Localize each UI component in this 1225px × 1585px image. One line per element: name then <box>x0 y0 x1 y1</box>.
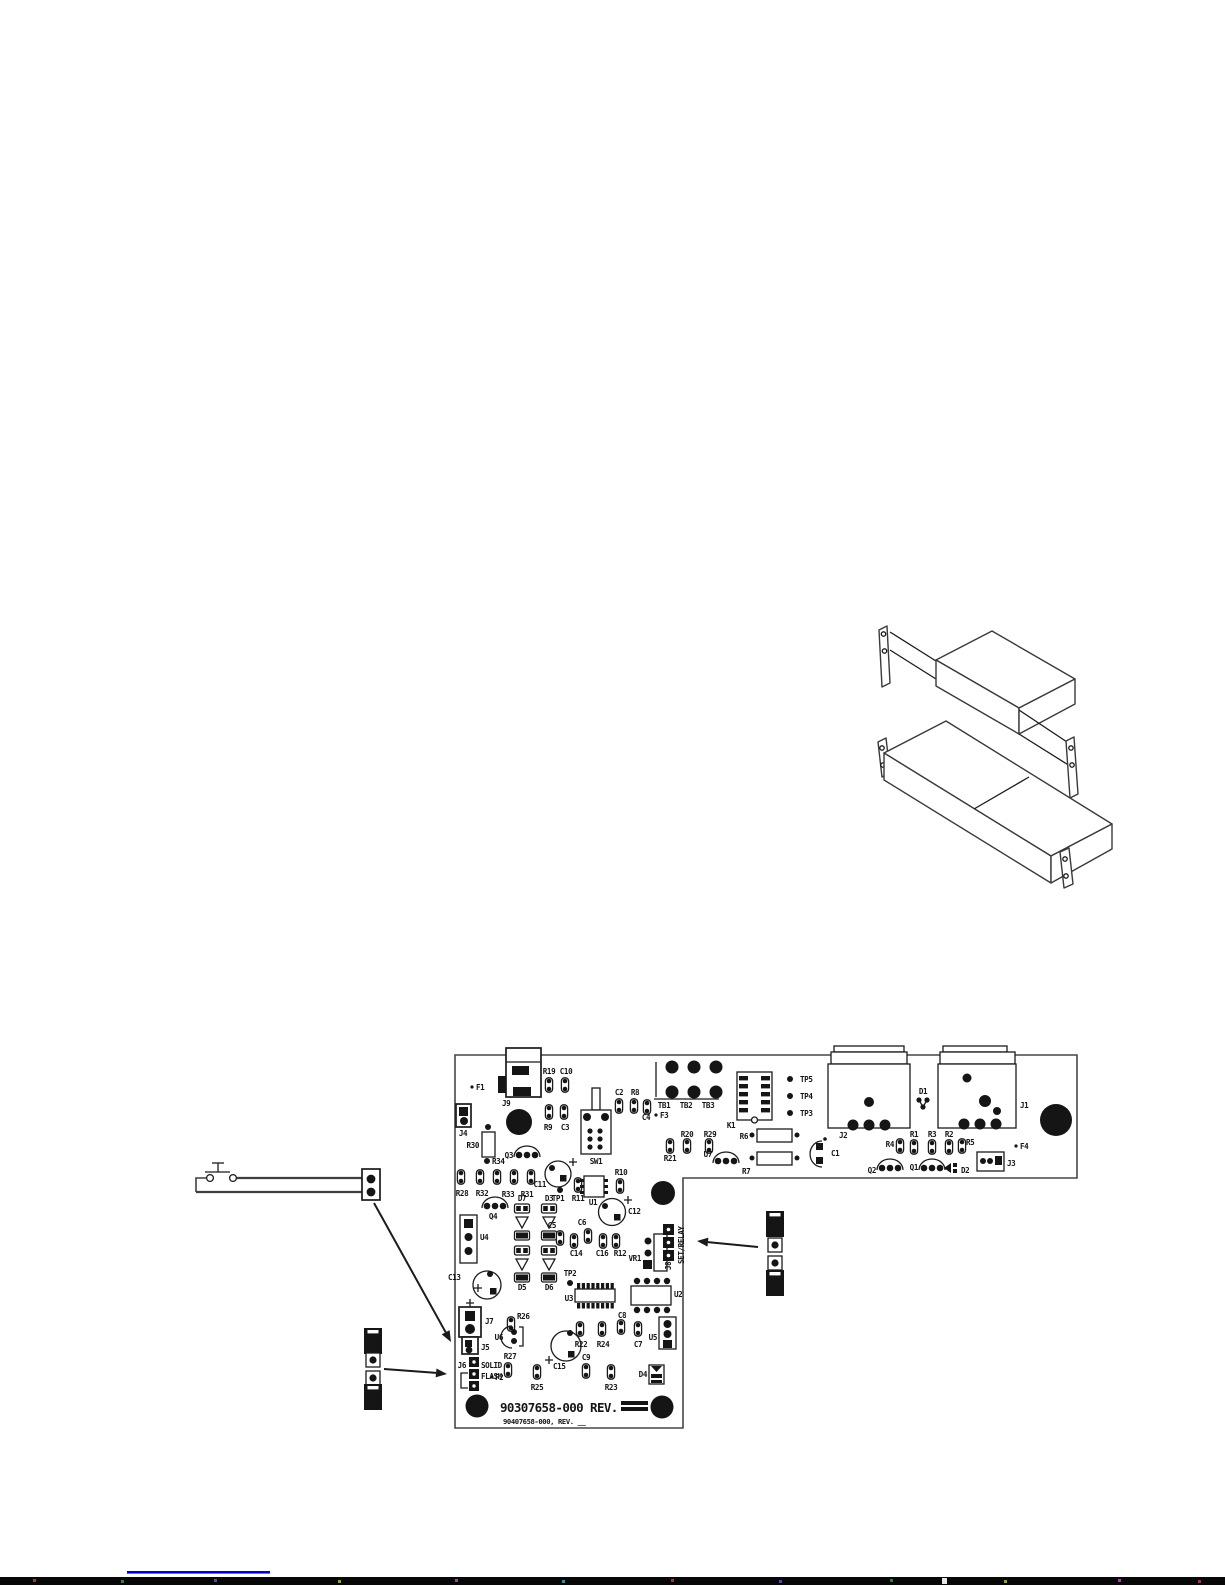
silk-label-j6: J6 <box>458 1361 467 1370</box>
silk-label-u3: U3 <box>565 1294 574 1303</box>
silk-label-r8: R8 <box>631 1088 640 1097</box>
jumper-shunt <box>766 1270 784 1296</box>
connector-j3 <box>977 1152 1004 1171</box>
silk-label-j1: J1 <box>1020 1101 1029 1110</box>
silk-label-f3: F3 <box>660 1111 669 1120</box>
silk-label-j9: J9 <box>502 1099 511 1108</box>
manual-page: F1 J9 J4 R30 R34 Q3 R19 C10 R9 C3 <box>0 0 1225 1585</box>
silk-label-r29: R29 <box>704 1130 717 1139</box>
diode-d4 <box>649 1365 664 1384</box>
silk-label-tp5: TP5 <box>800 1075 813 1084</box>
connector-j7 <box>459 1307 481 1337</box>
silk-label-u2: U2 <box>674 1290 682 1299</box>
silk-label-tp3: TP3 <box>800 1109 813 1118</box>
silk-label-r2: R2 <box>945 1130 953 1139</box>
jumper-shunt <box>766 1211 784 1237</box>
jumper-stack-left <box>364 1328 382 1410</box>
jumper-shunt <box>364 1328 382 1354</box>
silk-label-d5: D5 <box>518 1283 527 1292</box>
silk-label-r28: R28 <box>456 1189 469 1198</box>
silk-label-tb3: TB3 <box>702 1101 715 1110</box>
silk-label-j8: J8 <box>664 1261 673 1270</box>
silk-label-r20: R20 <box>681 1130 694 1139</box>
silk-label-q2: Q2 <box>868 1166 876 1175</box>
silk-label-solid: SOLID <box>481 1361 503 1370</box>
arrow-jumper-to-j8 <box>697 1238 758 1247</box>
connector-j1 <box>938 1046 1016 1130</box>
switch-harness-figure <box>196 1163 380 1200</box>
silk-label-tp2: TP2 <box>564 1269 577 1278</box>
silk-label-r10: R10 <box>615 1168 628 1177</box>
silk-label-f4: F4 <box>1020 1142 1029 1151</box>
connector-u5 <box>659 1317 676 1349</box>
silk-label-c9: C9 <box>582 1353 591 1362</box>
silk-label-c5: C5 <box>548 1221 557 1230</box>
silk-label-c6: C6 <box>578 1218 587 1227</box>
silk-label-r32: R32 <box>476 1189 489 1198</box>
silk-label-d7: D7 <box>518 1194 526 1203</box>
silk-label-r9: R9 <box>544 1123 553 1132</box>
silk-label-r33: R33 <box>502 1190 515 1199</box>
silk-label-k1: K1 <box>727 1121 736 1130</box>
silk-label-r21: R21 <box>664 1154 677 1163</box>
silk-label-sw1: SW1 <box>590 1157 603 1166</box>
connector-j5 <box>462 1337 478 1354</box>
silk-label-u7: U7 <box>704 1150 712 1159</box>
silk-label-tb2: TB2 <box>680 1101 693 1110</box>
silk-label-set-relay: SET/RELAY <box>677 1226 686 1264</box>
silk-label-r30: R30 <box>466 1141 479 1150</box>
silk-label-u1: U1 <box>589 1198 598 1207</box>
silk-label-c16: C16 <box>596 1249 609 1258</box>
silk-label-d1: D1 <box>919 1087 928 1096</box>
silk-label-r3: R3 <box>928 1130 937 1139</box>
silk-label-u6: U6 <box>495 1333 504 1342</box>
silk-label-c3: C3 <box>561 1123 570 1132</box>
silk-label-r4: R4 <box>886 1140 895 1149</box>
silk-label-c13: C13 <box>448 1273 461 1282</box>
resistor-r7 <box>750 1152 800 1165</box>
silk-label-f2: F2 <box>495 1373 503 1382</box>
silk-label-j5: J5 <box>481 1343 490 1352</box>
connector-u4 <box>460 1215 477 1263</box>
silk-label-r19: R19 <box>543 1067 556 1076</box>
board-number: 90307658-000 REV. <box>500 1400 618 1415</box>
silk-label-q1: Q1 <box>910 1163 919 1172</box>
silk-label-c10: C10 <box>560 1067 573 1076</box>
silk-label-tp4: TP4 <box>800 1092 813 1101</box>
switch-contact <box>207 1175 214 1182</box>
silk-label-d2: D2 <box>961 1166 969 1175</box>
silk-label-c1: C1 <box>831 1149 840 1158</box>
connector-j8 <box>663 1224 674 1261</box>
silk-label-c2: C2 <box>615 1088 623 1097</box>
arrow-harness-to-j5 <box>374 1203 451 1342</box>
silk-label-j2: J2 <box>839 1131 847 1140</box>
mounting-hole <box>466 1395 489 1418</box>
silk-label-r6: R6 <box>740 1132 749 1141</box>
board-number-alt: 90407658-000, REV. __ <box>503 1417 587 1426</box>
arrow-jumper-to-j6 <box>384 1369 447 1378</box>
scan-edge-artifact <box>0 1577 1225 1585</box>
silk-label-tp1: TP1 <box>552 1194 565 1203</box>
silk-label-tb1: TB1 <box>658 1101 671 1110</box>
silk-label-r24: R24 <box>597 1340 610 1349</box>
relay-k1 <box>737 1072 772 1123</box>
silk-label-r26: R26 <box>517 1312 530 1321</box>
ic-u1 <box>580 1176 608 1197</box>
silk-label-c11: C11 <box>533 1180 546 1189</box>
silk-label-j3: J3 <box>1007 1159 1016 1168</box>
pcb-assembly-figure: F1 J9 J4 R30 R34 Q3 R19 C10 R9 C3 <box>448 1046 1077 1428</box>
footer-link-underline[interactable] <box>127 1571 270 1574</box>
silk-label-vr1: VR1 <box>628 1254 641 1263</box>
silk-label-r22: R22 <box>575 1340 588 1349</box>
page-canvas: F1 J9 J4 R30 R34 Q3 R19 C10 R9 C3 <box>0 0 1225 1585</box>
silk-label-j7: J7 <box>485 1317 493 1326</box>
connector-j2 <box>828 1046 910 1131</box>
jumper-shunt <box>364 1384 382 1410</box>
mounting-hole <box>1040 1104 1072 1136</box>
silk-label-u5: U5 <box>649 1333 658 1342</box>
silk-label-c7: C7 <box>634 1340 642 1349</box>
silk-label-u4: U4 <box>480 1233 489 1242</box>
silk-label-r7: R7 <box>742 1167 750 1176</box>
jumper-stack-right <box>766 1211 784 1296</box>
silk-label-q4: Q4 <box>489 1212 498 1221</box>
silk-label-r23: R23 <box>605 1383 618 1392</box>
silk-label-c12: C12 <box>628 1207 641 1216</box>
silk-label-f1: F1 <box>476 1083 485 1092</box>
silk-label-j4: J4 <box>459 1129 468 1138</box>
mounting-hole <box>651 1181 675 1205</box>
silk-label-r1: R1 <box>910 1130 919 1139</box>
silk-label-r12: R12 <box>614 1249 627 1258</box>
connector-j9 <box>506 1109 532 1135</box>
silk-label-c8: C8 <box>618 1311 627 1320</box>
silk-label-c15: C15 <box>553 1362 566 1371</box>
silk-label-r5: R5 <box>966 1138 975 1147</box>
silk-label-r34: R34 <box>492 1157 505 1166</box>
rack-shelf-figure-bottom <box>878 721 1112 888</box>
switch-contact <box>230 1175 237 1182</box>
silk-label-c14: C14 <box>570 1249 583 1258</box>
silk-label-r11: R11 <box>572 1194 585 1203</box>
resistor-r6 <box>750 1129 800 1142</box>
mounting-hole <box>651 1396 674 1419</box>
silk-label-r25: R25 <box>531 1383 544 1392</box>
silk-label-r27: R27 <box>504 1352 517 1361</box>
harness-connector <box>362 1169 380 1200</box>
silk-label-d3: D3 <box>545 1194 554 1203</box>
silk-label-d4: D4 <box>639 1370 648 1379</box>
connector-j4 <box>456 1104 471 1127</box>
silk-label-q3: Q3 <box>505 1151 514 1160</box>
silk-label-d6: D6 <box>545 1283 554 1292</box>
silk-label-c4: C4 <box>642 1113 651 1122</box>
